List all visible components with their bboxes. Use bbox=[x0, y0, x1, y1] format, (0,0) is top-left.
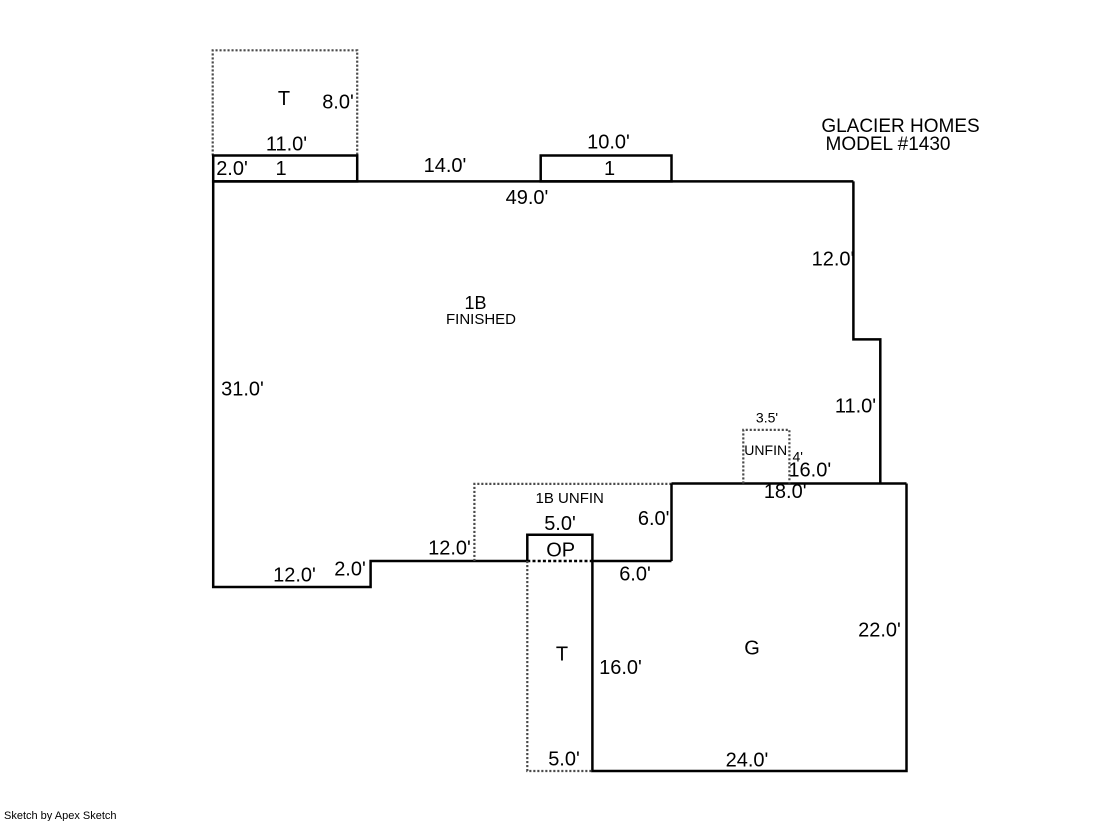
svg-text:T: T bbox=[556, 644, 568, 666]
svg-text:3.5': 3.5' bbox=[756, 410, 778, 426]
svg-text:MODEL #1430: MODEL #1430 bbox=[826, 134, 951, 155]
svg-text:T: T bbox=[278, 88, 290, 110]
svg-text:16.0': 16.0' bbox=[599, 657, 642, 679]
svg-text:31.0': 31.0' bbox=[221, 379, 264, 401]
svg-text:4': 4' bbox=[792, 449, 802, 465]
svg-text:FINISHED: FINISHED bbox=[446, 311, 516, 328]
svg-text:UNFIN: UNFIN bbox=[744, 442, 787, 458]
svg-text:8.0': 8.0' bbox=[322, 92, 354, 114]
svg-text:1: 1 bbox=[604, 158, 615, 180]
svg-text:24.0': 24.0' bbox=[726, 750, 769, 772]
svg-text:12.0': 12.0' bbox=[812, 249, 855, 271]
svg-text:G: G bbox=[744, 638, 760, 660]
svg-text:11.0': 11.0' bbox=[266, 134, 307, 156]
svg-text:6.0': 6.0' bbox=[638, 508, 670, 530]
svg-text:6.0': 6.0' bbox=[619, 564, 651, 586]
svg-text:2.0': 2.0' bbox=[334, 559, 366, 581]
svg-text:10.0': 10.0' bbox=[587, 132, 630, 154]
svg-text:1: 1 bbox=[275, 158, 286, 180]
svg-text:11.0': 11.0' bbox=[835, 396, 876, 418]
svg-text:5.0': 5.0' bbox=[548, 749, 580, 771]
svg-text:1B: 1B bbox=[464, 293, 486, 313]
svg-text:22.0': 22.0' bbox=[858, 620, 901, 642]
svg-text:1B UNFIN: 1B UNFIN bbox=[536, 490, 604, 507]
svg-text:49.0': 49.0' bbox=[506, 187, 549, 209]
svg-text:18.0': 18.0' bbox=[764, 481, 807, 503]
svg-text:OP: OP bbox=[546, 540, 575, 562]
svg-text:12.0': 12.0' bbox=[428, 538, 471, 560]
svg-text:14.0': 14.0' bbox=[424, 155, 467, 177]
svg-text:2.0': 2.0' bbox=[216, 158, 248, 180]
svg-text:12.0': 12.0' bbox=[273, 565, 316, 587]
svg-text:Sketch by Apex Sketch: Sketch by Apex Sketch bbox=[4, 810, 117, 821]
svg-text:5.0': 5.0' bbox=[544, 513, 576, 535]
